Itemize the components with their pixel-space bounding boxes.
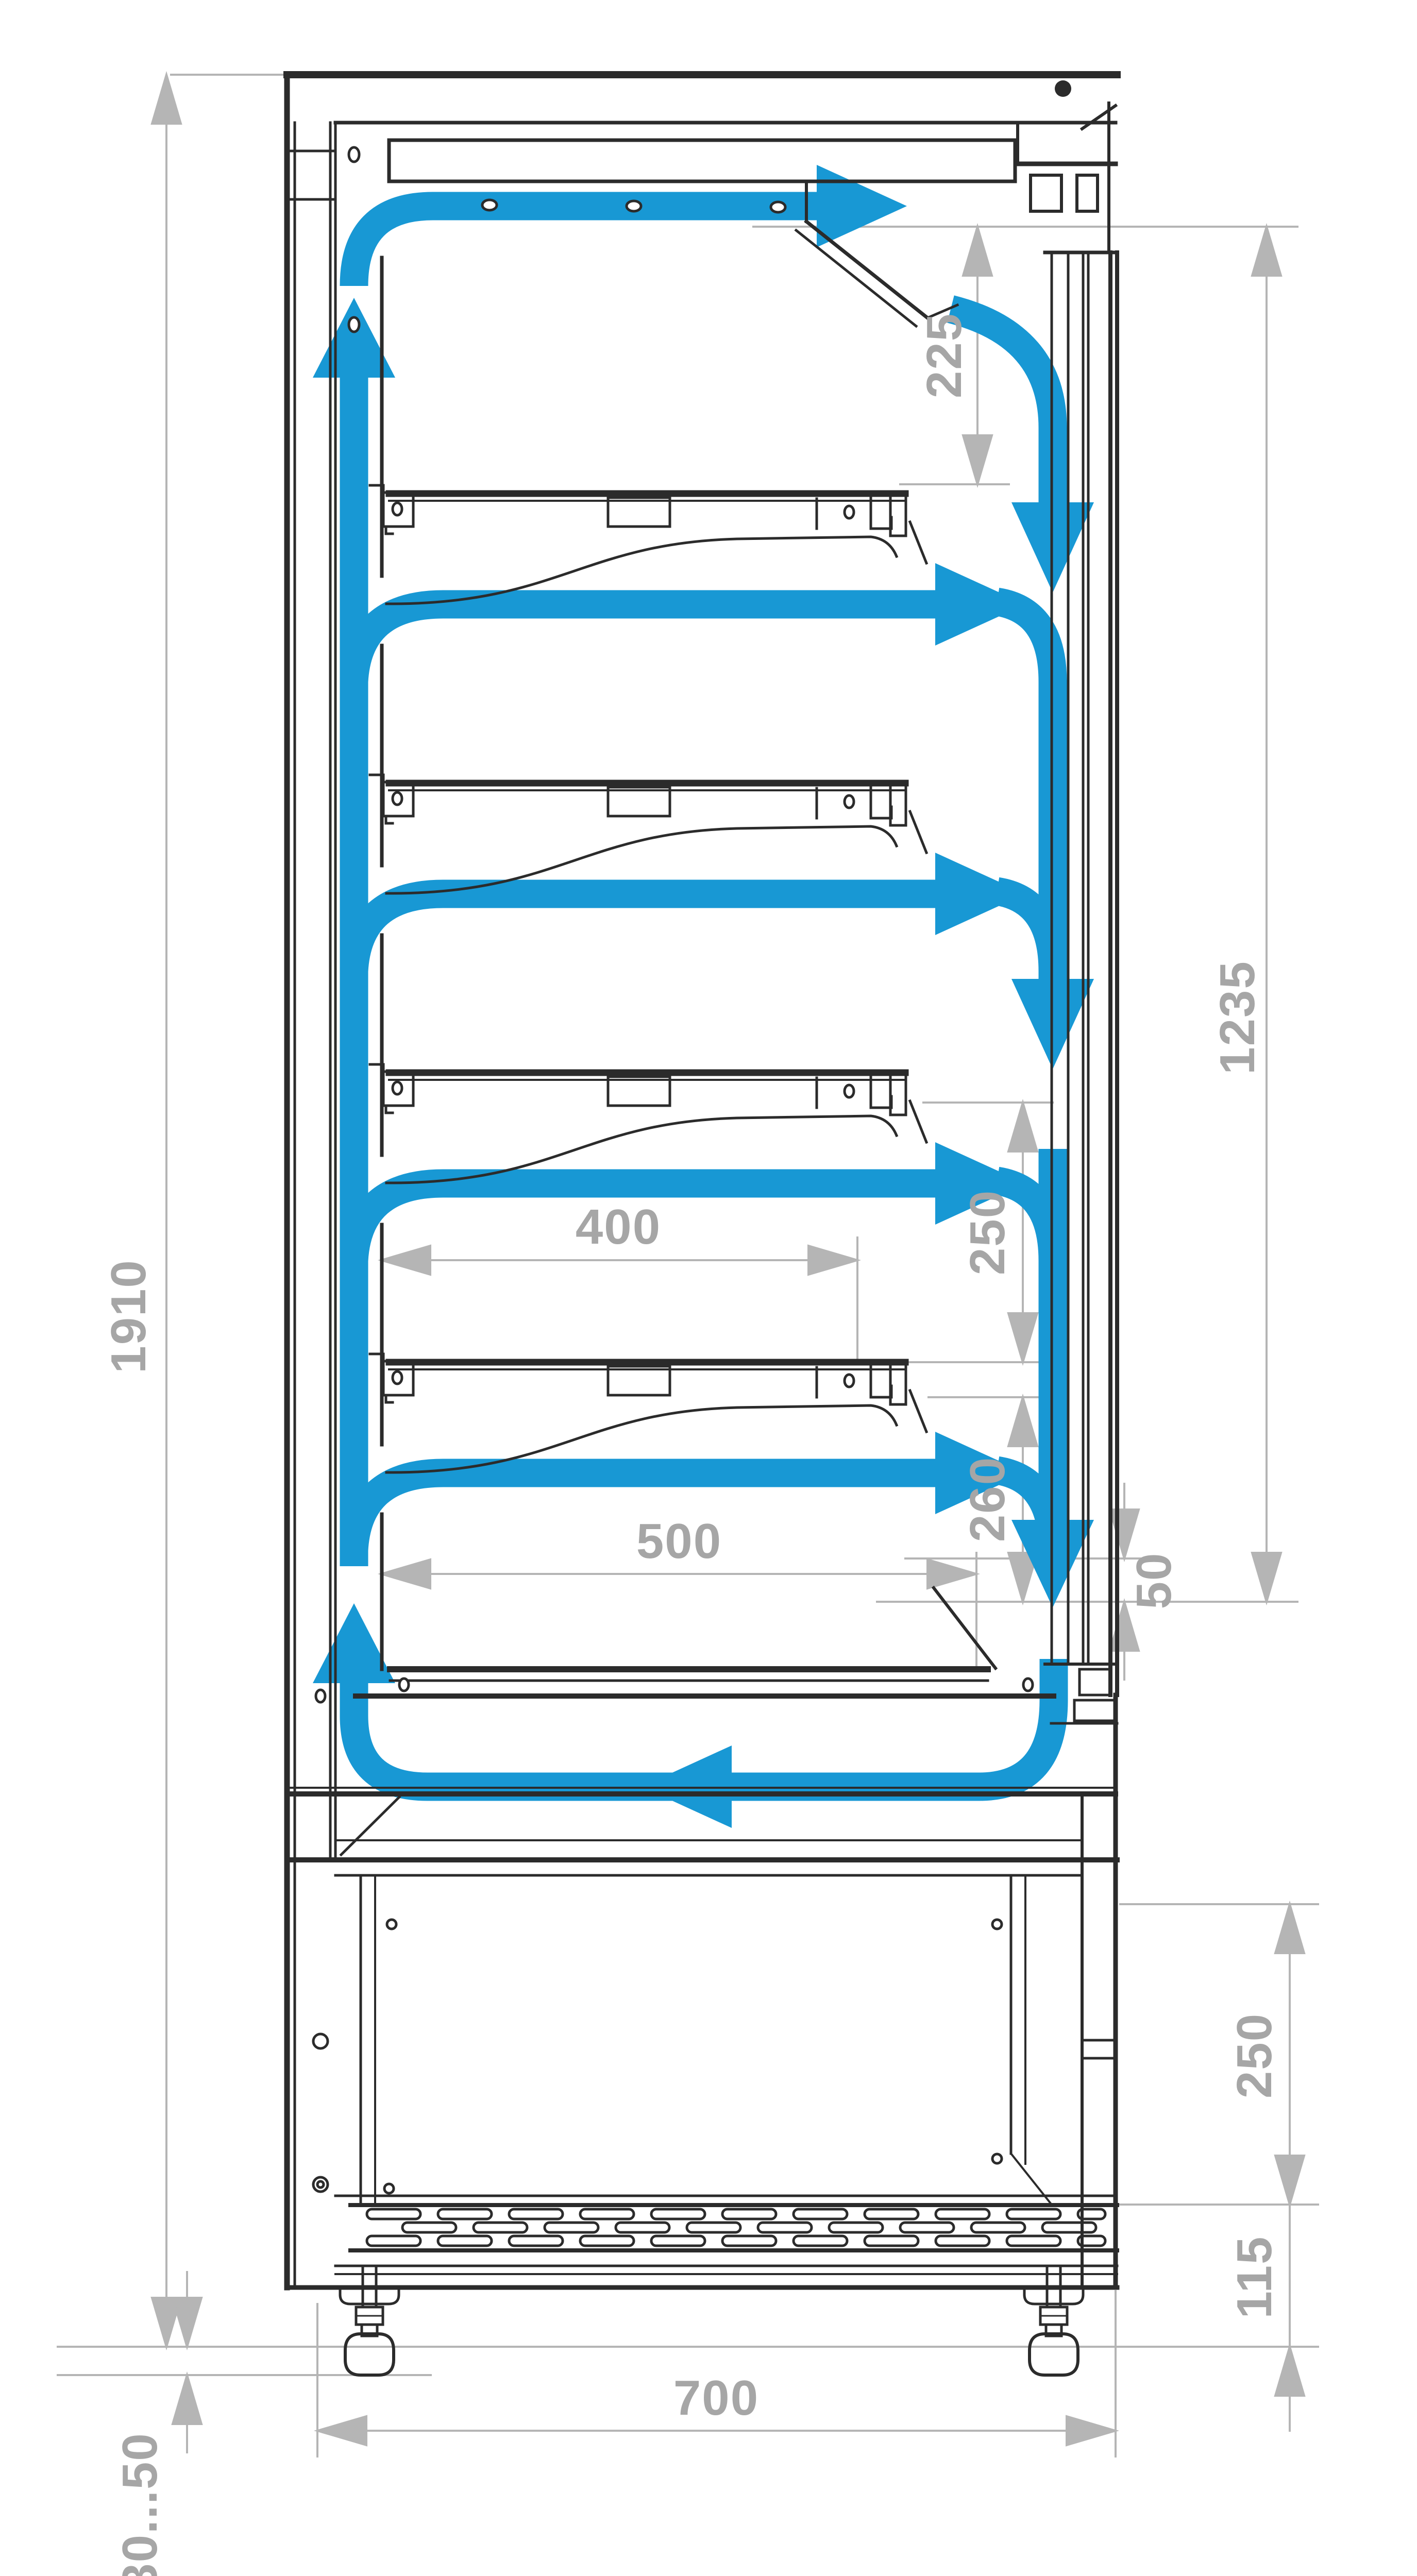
- dim-base-depth: 700: [673, 2370, 759, 2427]
- grille-slot: [1042, 2223, 1096, 2232]
- grille-slot: [829, 2223, 883, 2232]
- dim-top-air-gap: 225: [916, 313, 973, 398]
- grille-slot: [1007, 2236, 1060, 2246]
- shelf: [370, 1064, 926, 1183]
- grille-slot: [865, 2236, 918, 2246]
- shelf: [370, 1354, 926, 1472]
- dim-bottom-shelf-gap: 260: [959, 1456, 1016, 1542]
- grille-slot: [367, 2236, 420, 2246]
- grille-slot: [616, 2223, 669, 2232]
- dim-shelf-spacing: 250: [959, 1190, 1016, 1275]
- grille-slot: [687, 2223, 740, 2232]
- airflow-diagram: 1910 225 1235 250 400 260 500 50 250 115…: [0, 0, 1417, 2576]
- shelves: [370, 485, 926, 1472]
- grille-slot: [509, 2236, 563, 2246]
- grille-slot: [651, 2209, 705, 2219]
- grille-slot: [474, 2223, 527, 2232]
- dimension-lines: [57, 75, 1319, 2458]
- dim-door-bottom-gap: 50: [1126, 1552, 1183, 1609]
- grille-slot: [722, 2236, 776, 2246]
- dim-overall-height: 1910: [100, 1259, 157, 1374]
- grille-slot: [438, 2236, 492, 2246]
- grille-slot: [651, 2236, 705, 2246]
- grille-slot: [758, 2223, 812, 2232]
- dim-shelf-depth: 400: [576, 1199, 661, 1256]
- grille-slot: [794, 2209, 847, 2219]
- grille-slot: [722, 2209, 776, 2219]
- grille-slot: [794, 2236, 847, 2246]
- grille-slot: [509, 2209, 563, 2219]
- grille-slot: [580, 2236, 634, 2246]
- grille-slot: [1007, 2209, 1060, 2219]
- cabinet-cross-section-drawing: [0, 0, 1417, 2576]
- grille-slot: [900, 2223, 954, 2232]
- grille-slot: [971, 2223, 1025, 2232]
- grille-slot: [402, 2223, 456, 2232]
- grille-slot: [936, 2209, 989, 2219]
- grille-slot: [580, 2209, 634, 2219]
- dim-foot-adjust-range: 30...50: [112, 2432, 168, 2576]
- grille-slot: [865, 2209, 918, 2219]
- grille-slot: [367, 2209, 420, 2219]
- dim-display-opening: 1235: [1209, 960, 1266, 1075]
- adjustable-foot: [1024, 2267, 1083, 2375]
- dim-bottom-well-depth: 500: [636, 1513, 722, 1570]
- shelf: [370, 775, 926, 893]
- shelf: [370, 485, 926, 604]
- dim-base-grille-height: 115: [1226, 2236, 1283, 2319]
- adjustable-foot: [340, 2267, 399, 2375]
- grille-slot: [545, 2223, 598, 2232]
- grille-slot: [438, 2209, 492, 2219]
- grille-slot: [936, 2236, 989, 2246]
- dim-machine-height: 250: [1226, 2013, 1283, 2098]
